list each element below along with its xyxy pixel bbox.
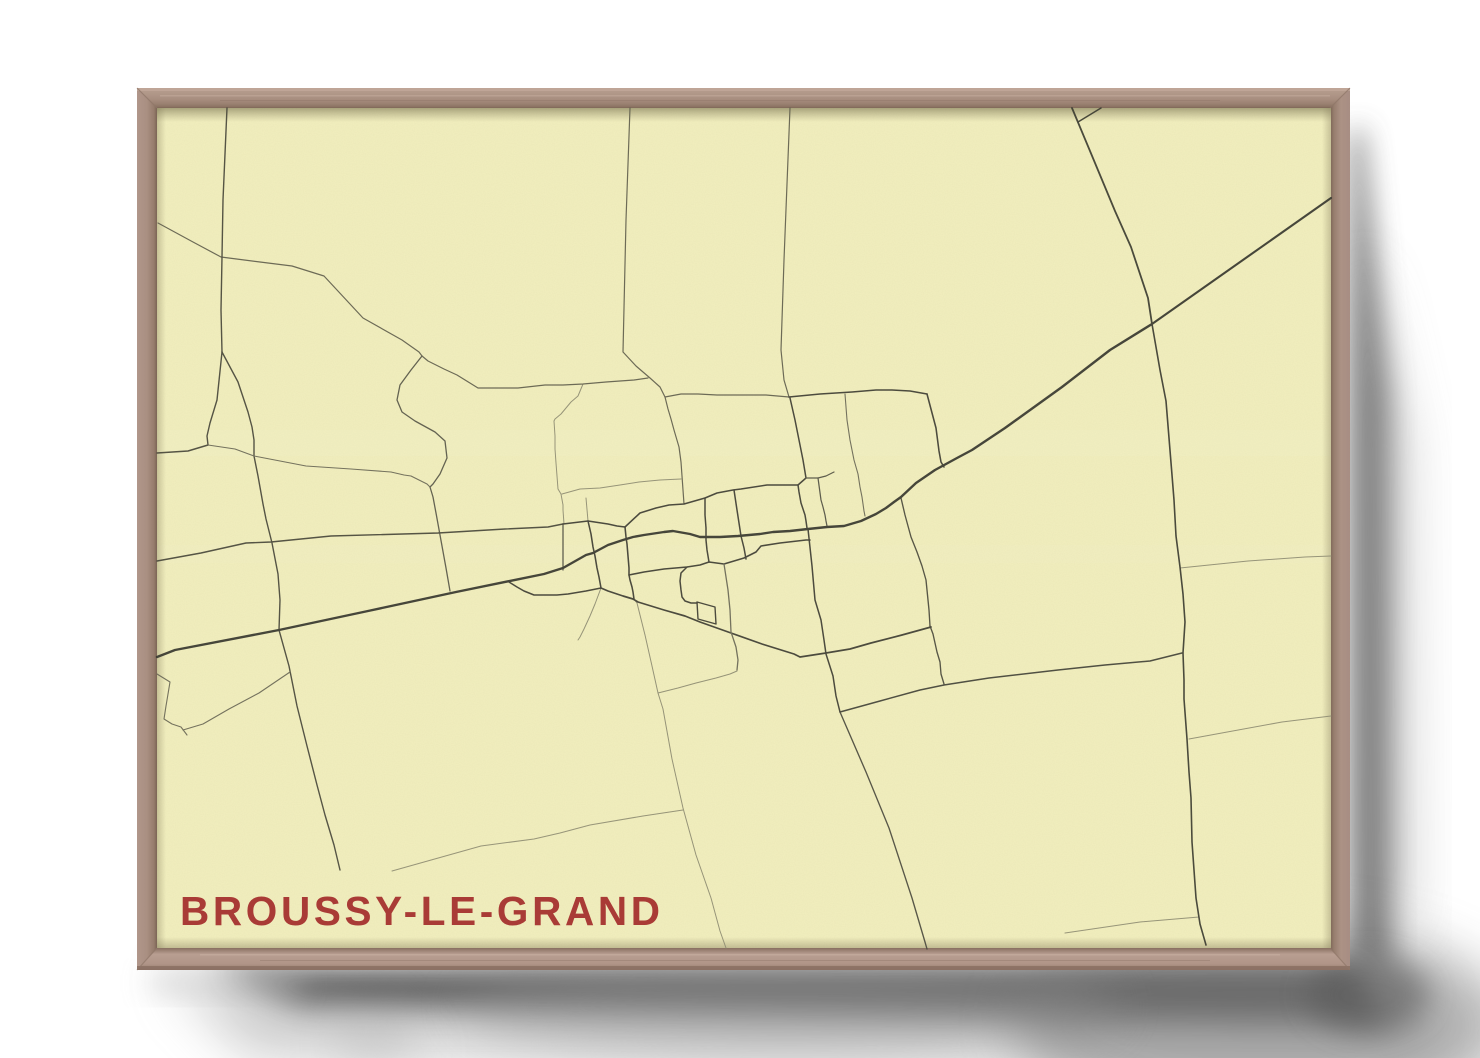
svg-text:BROUSSY-LE-GRAND: BROUSSY-LE-GRAND	[180, 888, 664, 934]
